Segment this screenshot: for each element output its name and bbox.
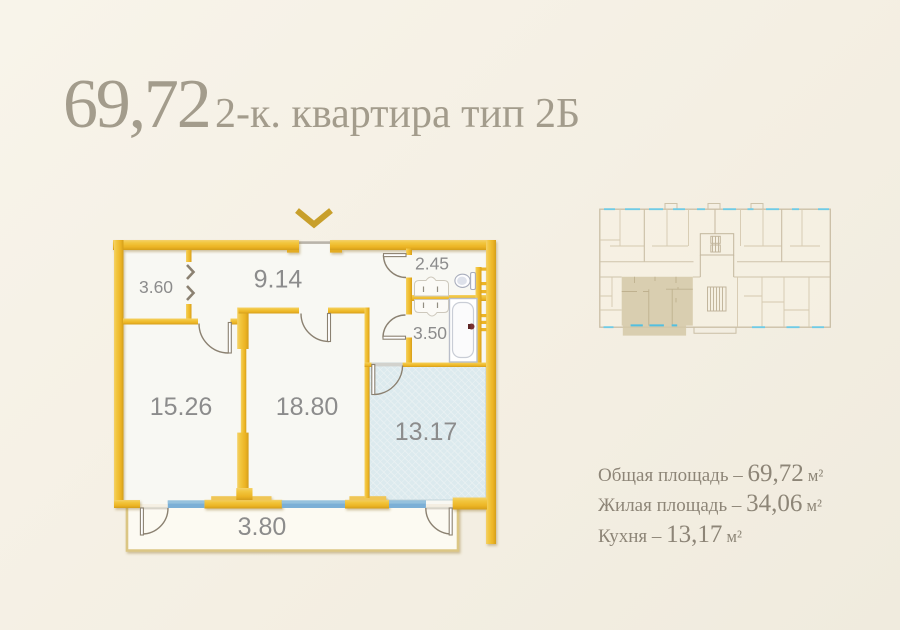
svg-text:3.50: 3.50 xyxy=(413,323,447,343)
svg-text:3.80: 3.80 xyxy=(238,513,287,541)
svg-text:2.45: 2.45 xyxy=(415,254,449,274)
svg-text:3.60: 3.60 xyxy=(139,277,173,297)
svg-text:13.17: 13.17 xyxy=(395,418,458,446)
svg-text:18.80: 18.80 xyxy=(276,393,339,421)
svg-text:15.26: 15.26 xyxy=(150,393,213,421)
svg-text:9.14: 9.14 xyxy=(254,266,303,294)
